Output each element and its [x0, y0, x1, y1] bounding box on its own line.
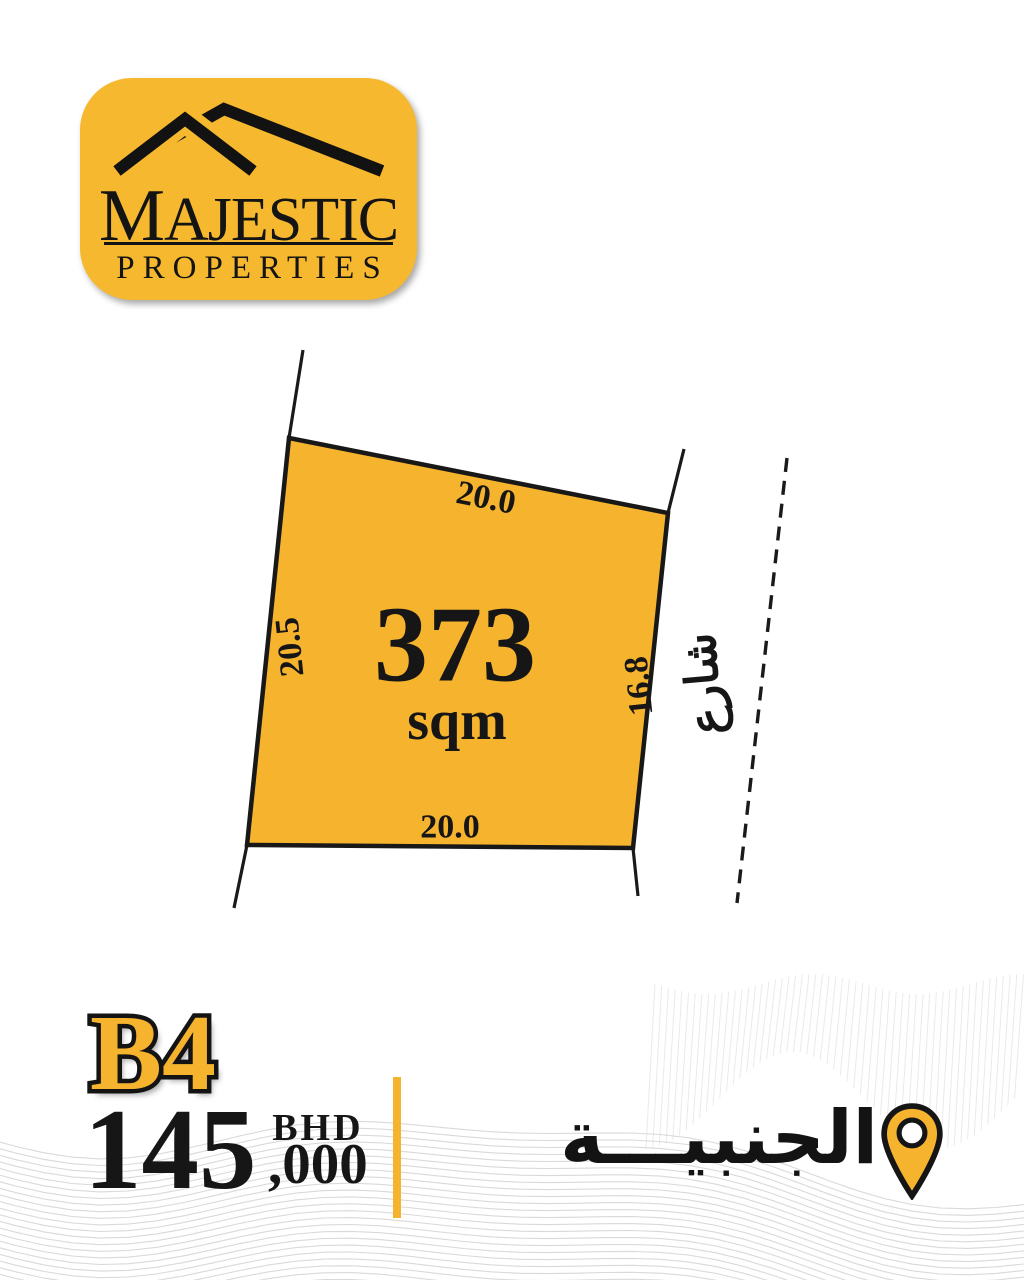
location-name: الجنبيـــة	[500, 1094, 878, 1183]
boundary-extension-top-left	[289, 350, 303, 438]
property-flyer: MAJESTIC PROPERTIES 20.0 20.5 16.8 20.0 …	[0, 0, 1024, 1280]
location-pin-icon	[880, 1103, 944, 1200]
boundary-extension-bottom-left	[234, 845, 247, 908]
street-label: شارع	[673, 631, 735, 737]
price-amount: 145	[84, 1092, 257, 1207]
footer-divider	[393, 1077, 401, 1218]
price-stack: BHD ,000	[268, 1113, 368, 1187]
dimension-right: 16.8	[617, 654, 660, 717]
price-thousands: ,000	[268, 1143, 368, 1187]
dimension-bottom: 20.0	[420, 809, 480, 846]
pin-hole	[899, 1120, 925, 1146]
dimension-left: 20.5	[268, 615, 311, 678]
area-unit: sqm	[407, 690, 507, 752]
area-value: 373	[374, 586, 536, 705]
boundary-extension-bottom-right	[633, 848, 638, 896]
street-dashed-line	[737, 458, 787, 903]
boundary-extension-top-right	[668, 449, 684, 513]
